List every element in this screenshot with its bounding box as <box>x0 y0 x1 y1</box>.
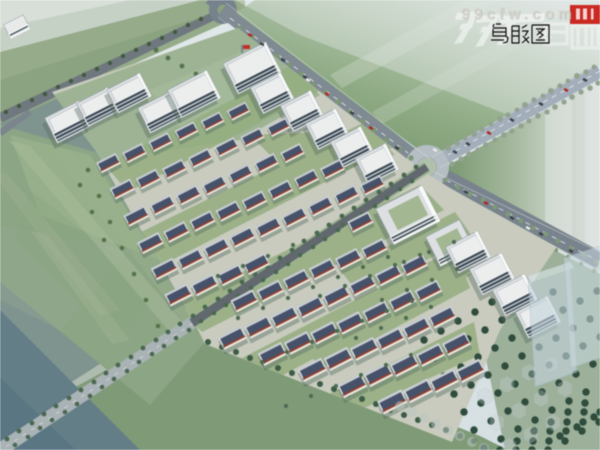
svg-text:99cfw.com: 99cfw.com <box>461 6 576 23</box>
